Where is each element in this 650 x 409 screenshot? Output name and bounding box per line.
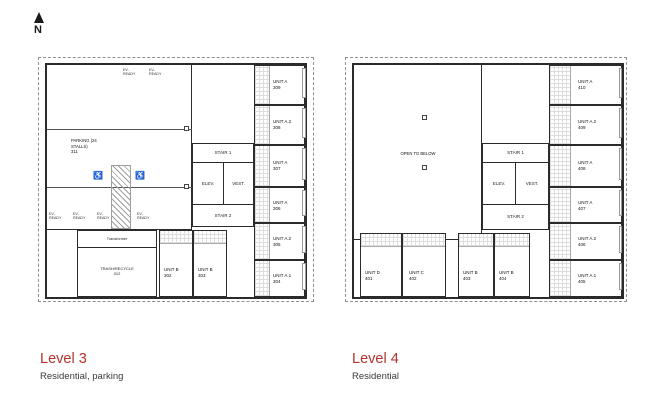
stair-1-label: STAIR 1 [215, 150, 232, 155]
unit-room-a306: UNIT A306 [254, 187, 305, 223]
unit-label: UNIT D401 [365, 270, 380, 281]
unit-room-b403: UNIT B403 [458, 233, 494, 297]
unit-fixtures [160, 231, 192, 244]
unit-label: UNIT B403 [463, 270, 478, 281]
unit-label: UNIT A408 [578, 160, 592, 171]
deck-edge [619, 148, 622, 180]
trash-room-label: TRASH/RECYCLE 312 [100, 267, 134, 277]
accessible-parking-icon: ♿ [135, 171, 145, 180]
parking-room-label: PARKING (24 STALLS) 311 [71, 133, 141, 155]
unit-label: UNIT A.1405 [578, 273, 596, 284]
level3-building-outline: PARKING (24 STALLS) 311 EV- READY EV- RE… [45, 63, 307, 299]
unit-fixtures [255, 106, 270, 144]
deck-edge [302, 108, 306, 138]
elevator-label: ELEV. [202, 181, 214, 186]
ev-ready-label: EV- READY [123, 68, 135, 77]
structural-column [422, 165, 427, 170]
ev-ready-label: EV- READY [137, 212, 149, 221]
parking-garage: PARKING (24 STALLS) 311 EV- READY EV- RE… [47, 65, 192, 230]
unit-fixtures [550, 146, 571, 186]
north-label: N [34, 24, 51, 36]
unit-room-a1-405: UNIT A.1405 [549, 260, 622, 297]
ev-ready-label: EV- READY [73, 212, 85, 221]
unit-fixtures [255, 261, 270, 296]
unit-label: UNIT A306 [273, 200, 287, 211]
unit-label: UNIT C402 [409, 270, 424, 281]
level4-title: Level 4 [352, 352, 399, 368]
stair-2-room: STAIR 2 [192, 204, 254, 227]
unit-room-a2-308: UNIT A.2308 [254, 105, 305, 145]
unit-label: UNIT A410 [578, 79, 592, 90]
hatched-walkway [111, 165, 131, 229]
deck-edge [619, 226, 622, 253]
stair-2-label: STAIR 2 [507, 214, 524, 219]
unit-room-b302: UNIT B302 [159, 230, 193, 297]
deck-edge [619, 108, 622, 138]
deck-edge [619, 263, 622, 290]
transformer-label: Transformer [107, 237, 128, 242]
unit-room-b404: UNIT B404 [494, 233, 530, 297]
ev-ready-label: EV- READY [49, 212, 61, 221]
ev-ready-label: EV- READY [97, 212, 109, 221]
vestibule-label: VEST. [526, 181, 539, 186]
unit-label: UNIT A.1304 [273, 273, 291, 284]
unit-room-a2-305: UNIT A.2305 [254, 223, 305, 260]
unit-fixtures [194, 231, 226, 244]
unit-room-a407: UNIT A407 [549, 187, 622, 223]
north-arrow: N [33, 12, 51, 36]
elevator-room: ELEV. [192, 162, 224, 205]
unit-fixtures [550, 261, 571, 296]
unit-label: UNIT A309 [273, 79, 287, 90]
structural-column [422, 115, 427, 120]
deck-edge [302, 148, 306, 180]
stair-2-label: STAIR 2 [215, 213, 232, 218]
unit-fixtures [550, 66, 571, 104]
deck-edge [302, 190, 306, 216]
stair-1-room: STAIR 1 [482, 143, 549, 163]
unit-fixtures [550, 106, 571, 144]
unit-room-a2-406: UNIT A.2406 [549, 223, 622, 260]
unit-room-a309: UNIT A309 [254, 65, 305, 105]
vestibule-label: VEST. [232, 181, 245, 186]
open-to-below-label: OPEN TO BELOW [354, 151, 482, 156]
unit-room-a408: UNIT A408 [549, 145, 622, 187]
north-arrow-icon [34, 12, 44, 23]
unit-fixtures [255, 66, 270, 104]
unit-fixtures [550, 188, 571, 222]
level4-building-outline: OPEN TO BELOW STAIR 1 ELEV. VEST. STAIR … [352, 63, 624, 299]
deck-edge [619, 190, 622, 216]
unit-room-d401: UNIT D401 [360, 233, 402, 297]
unit-room-a1-304: UNIT A.1304 [254, 260, 305, 297]
level3-title: Level 3 [40, 352, 123, 368]
unit-label: UNIT A307 [273, 160, 287, 171]
architectural-sheet: N PARKING (24 STALLS) 311 EV- READY EV- … [0, 0, 650, 409]
transformer-room: Transformer [77, 230, 157, 248]
stair-1-room: STAIR 1 [192, 143, 254, 163]
unit-label: UNIT B303 [198, 267, 213, 278]
vestibule-room: VEST. [515, 162, 549, 205]
deck-edge [619, 68, 622, 98]
unit-fixtures [255, 146, 270, 186]
unit-label: UNIT B302 [164, 267, 179, 278]
open-to-below-area: OPEN TO BELOW [354, 65, 482, 240]
deck-edge [302, 226, 306, 253]
structural-column [184, 126, 189, 131]
vestibule-room: VEST. [223, 162, 254, 205]
unit-label: UNIT B404 [499, 270, 514, 281]
unit-fixtures [495, 234, 529, 247]
elevator-room: ELEV. [482, 162, 516, 205]
unit-label: UNIT A.2406 [578, 236, 596, 247]
deck-edge [302, 68, 306, 98]
elevator-label: ELEV. [493, 181, 505, 186]
parking-name: PARKING (24 STALLS) [71, 138, 97, 148]
level3-caption: Level 3 Residential, parking [40, 352, 123, 382]
level4-subtitle: Residential [352, 371, 399, 382]
unit-fixtures [255, 224, 270, 259]
unit-fixtures [459, 234, 493, 247]
unit-room-a410: UNIT A410 [549, 65, 622, 105]
stair-1-label: STAIR 1 [507, 150, 524, 155]
unit-label: UNIT A.2305 [273, 236, 291, 247]
deck-edge [302, 263, 306, 290]
level4-floor-plan: OPEN TO BELOW STAIR 1 ELEV. VEST. STAIR … [345, 57, 627, 302]
stair-2-room: STAIR 2 [482, 204, 549, 230]
level3-floor-plan: PARKING (24 STALLS) 311 EV- READY EV- RE… [38, 57, 314, 302]
structural-column [184, 184, 189, 189]
ev-ready-label: EV- READY [149, 68, 161, 77]
trash-recycle-room: TRASH/RECYCLE 312 [77, 247, 157, 297]
unit-fixtures [403, 234, 445, 247]
unit-room-c402: UNIT C402 [402, 233, 446, 297]
level3-subtitle: Residential, parking [40, 371, 123, 382]
parking-number: 311 [71, 149, 78, 154]
unit-fixtures [255, 188, 270, 222]
unit-room-a2-409: UNIT A.2409 [549, 105, 622, 145]
unit-label: UNIT A.2409 [578, 119, 596, 130]
unit-label: UNIT A407 [578, 200, 592, 211]
level4-caption: Level 4 Residential [352, 352, 399, 382]
unit-label: UNIT A.2308 [273, 119, 291, 130]
unit-room-a307: UNIT A307 [254, 145, 305, 187]
accessible-parking-icon: ♿ [93, 171, 103, 180]
parking-lane-line [47, 129, 192, 130]
unit-room-b303: UNIT B303 [193, 230, 227, 297]
unit-fixtures [550, 224, 571, 259]
trash-number: 312 [100, 272, 134, 277]
unit-fixtures [361, 234, 401, 247]
